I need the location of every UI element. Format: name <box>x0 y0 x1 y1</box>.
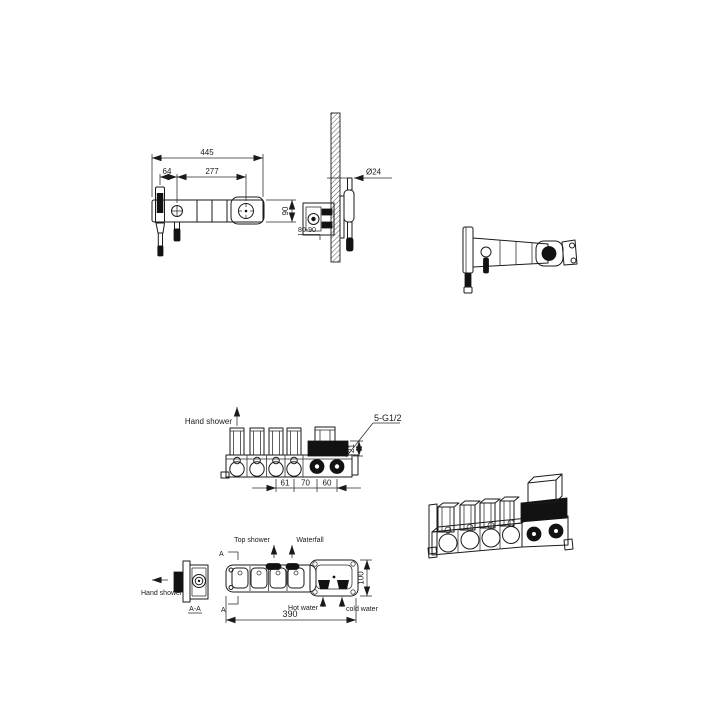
hand-shower-rod-bottom <box>348 222 353 238</box>
rough-in-3d-view <box>428 474 573 558</box>
section-mark-bottom: A <box>221 607 226 614</box>
plan-thermo-center <box>333 576 336 579</box>
small-port <box>273 457 280 464</box>
plan-port-dot <box>257 571 261 575</box>
technical-drawing-sheet: 445 64 277 90 Ø24 80-90 <box>0 0 720 720</box>
dim-text-depth-range: 80-90 <box>298 227 316 234</box>
handle-3d <box>481 247 491 257</box>
port-3d <box>439 534 457 552</box>
waterfall-label: Waterfall <box>296 537 324 544</box>
right-tab <box>352 455 358 475</box>
plate-dividers <box>197 200 227 222</box>
screw <box>313 562 317 566</box>
cold-inlet <box>337 580 349 589</box>
dim-text-90: 90 <box>281 206 290 215</box>
side-installation-view: Ø24 80-90 <box>298 113 392 262</box>
inlet-port-cold-center <box>335 464 339 468</box>
small-port <box>291 457 298 464</box>
plan-port-dot <box>276 571 280 575</box>
screw <box>351 590 355 594</box>
hand-shower-3d <box>465 273 471 287</box>
cartridge-towers <box>230 428 301 455</box>
dim-text-100: 100 <box>357 571 366 585</box>
thermostat-knob-center <box>245 210 248 213</box>
escutcheon-side <box>344 190 354 222</box>
thermo-block <box>308 441 348 456</box>
section-flange <box>183 561 190 602</box>
plan-port-dot <box>294 571 298 575</box>
section-hand-shower-label: Hand shower <box>141 590 183 597</box>
knob-3d <box>542 247 556 261</box>
dim-text-445: 445 <box>200 148 214 157</box>
port-3d <box>461 531 479 549</box>
wall-section <box>331 113 340 262</box>
hand-shower-rod-top <box>348 178 353 190</box>
drawing-canvas: 445 64 277 90 Ø24 80-90 <box>0 0 720 720</box>
rough-in-front-view: Hand shower 5-G1/2 61 70 60 21 <box>185 407 402 492</box>
section-spout <box>174 572 183 592</box>
section-label: A-A <box>189 606 201 613</box>
waterfall-slot <box>286 564 299 570</box>
dim-text-diameter: Ø24 <box>366 168 382 177</box>
dim-text-64: 64 <box>163 167 172 176</box>
front-extension-lines <box>152 154 263 203</box>
dim-text-61: 61 <box>281 479 290 488</box>
hand-shower-label: Hand shower <box>185 417 232 426</box>
tower-3d <box>460 501 480 530</box>
thermo-tower <box>315 427 335 441</box>
plan-port-dot <box>238 571 242 575</box>
screw <box>313 590 317 594</box>
hand-shower-tip-3d <box>464 287 472 293</box>
wall-stub-top <box>322 209 332 215</box>
section-mark-top: A <box>219 551 224 558</box>
dim-text-70: 70 <box>301 479 310 488</box>
trim-front-view: 445 64 277 90 <box>152 148 296 256</box>
valve-port-center <box>311 217 315 221</box>
hand-shower-taper <box>156 223 165 233</box>
bracket-screw-top <box>570 243 575 248</box>
dim-text-277: 277 <box>205 167 219 176</box>
lever-stem <box>175 222 180 229</box>
plan-ports <box>232 568 304 588</box>
top-shower-slot <box>266 564 281 570</box>
cold-water-label: cold water <box>346 606 379 613</box>
manifold-ports <box>230 457 301 476</box>
inlet-port-hot-center <box>315 464 319 468</box>
dim-text-21: 21 <box>347 444 356 453</box>
trim-bar-dividers-3d <box>500 240 532 266</box>
screw <box>351 562 355 566</box>
towers-3d <box>438 497 519 532</box>
hot-inlet <box>318 580 330 589</box>
tower-3d <box>500 497 519 526</box>
dim-text-390: 390 <box>282 609 297 619</box>
trim-3d-view <box>463 227 577 293</box>
small-port <box>254 457 261 464</box>
lever-grip <box>174 229 180 241</box>
hand-shower-tip <box>158 246 163 256</box>
section-cut-lines <box>228 552 238 604</box>
wall-stub-bottom <box>322 222 332 228</box>
section-port-center <box>198 580 200 582</box>
end-bracket-3d <box>562 240 577 265</box>
hand-shower-tip-side <box>347 238 354 251</box>
small-port <box>234 457 241 464</box>
port-3d <box>482 529 500 547</box>
lever-3d <box>484 258 489 273</box>
thermo-3d-port-cold-center <box>554 529 558 533</box>
tower-3d <box>438 503 459 532</box>
thread-label: 5-G1/2 <box>374 413 402 423</box>
small-port-3d <box>508 520 514 526</box>
bracket-screw-bottom <box>571 258 576 263</box>
section-aa-view: Hand shower A-A <box>141 561 208 613</box>
top-shower-label: Top shower <box>234 537 270 544</box>
tower-details <box>230 431 301 455</box>
hand-shower-rod <box>158 233 162 246</box>
thermostat-bulge <box>231 197 264 224</box>
flange-3d <box>463 227 473 273</box>
thermo-3d-port-hot-center <box>532 532 536 536</box>
port-3d <box>503 527 520 544</box>
tower-3d <box>480 499 500 528</box>
thermo-tower-detail <box>315 430 335 441</box>
dim-text-60: 60 <box>323 479 332 488</box>
mount-plate-edge <box>340 196 344 238</box>
rough-in-plan-view: A A Top shower Waterfall Hot water cold … <box>219 537 379 623</box>
hand-shower-grip <box>157 193 164 213</box>
